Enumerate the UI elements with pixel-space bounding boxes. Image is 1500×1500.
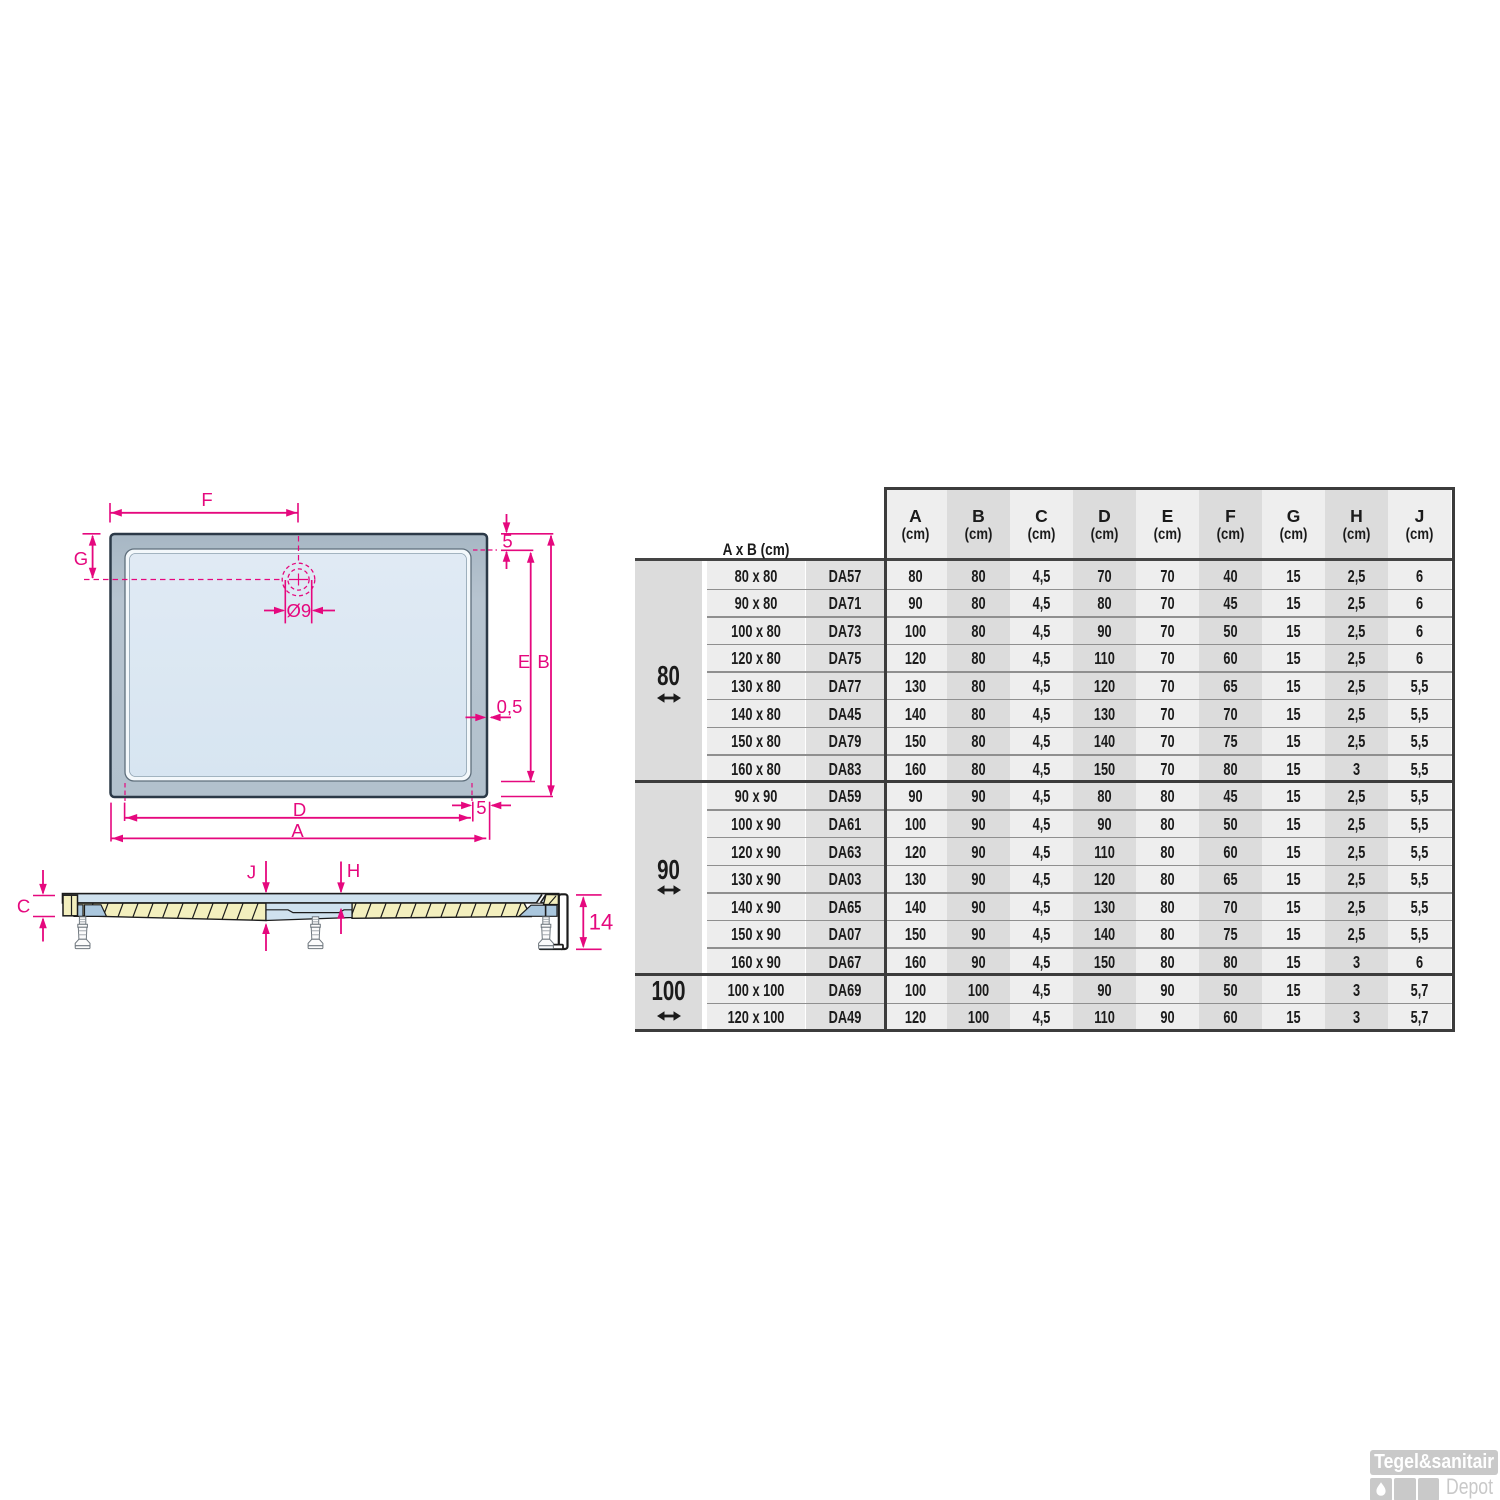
svg-text:J: J xyxy=(247,862,256,883)
svg-text:5: 5 xyxy=(476,797,486,818)
svg-text:G: G xyxy=(74,548,88,569)
svg-text:0,5: 0,5 xyxy=(497,696,523,717)
svg-text:B: B xyxy=(537,651,549,672)
svg-text:A: A xyxy=(291,820,304,841)
svg-text:F: F xyxy=(201,489,212,510)
svg-text:C: C xyxy=(17,896,30,917)
svg-text:E: E xyxy=(518,651,530,672)
svg-text:H: H xyxy=(347,860,360,881)
svg-text:14: 14 xyxy=(589,910,613,935)
svg-text:5: 5 xyxy=(502,530,512,551)
svg-text:Ø9: Ø9 xyxy=(286,600,311,621)
svg-text:D: D xyxy=(293,799,306,820)
